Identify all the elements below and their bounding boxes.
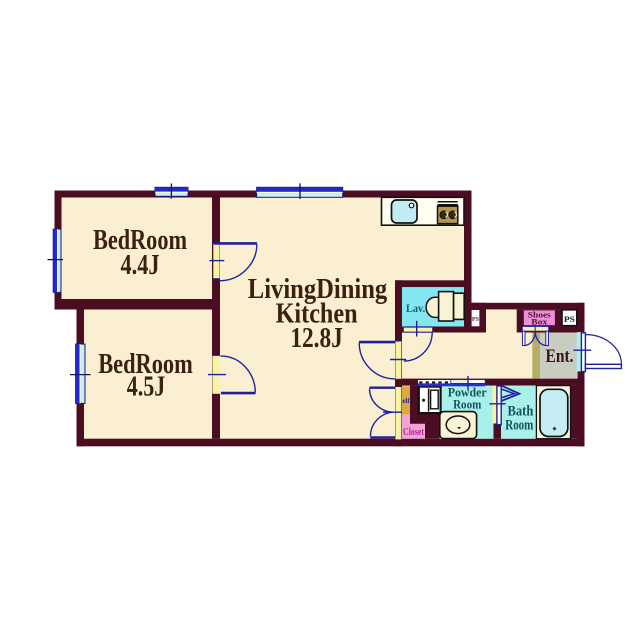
svg-text:Room: Room xyxy=(453,397,482,411)
svg-text:Lav.: Lav. xyxy=(406,301,425,315)
svg-text:4.4J: 4.4J xyxy=(121,250,160,281)
svg-text:Closet: Closet xyxy=(403,426,424,438)
svg-text:Room: Room xyxy=(505,417,533,433)
svg-text:Box: Box xyxy=(531,318,547,327)
svg-text:PS: PS xyxy=(472,316,480,323)
svg-text:4.5J: 4.5J xyxy=(127,371,166,402)
svg-text:PS: PS xyxy=(564,315,576,324)
svg-text:12.8J: 12.8J xyxy=(290,323,343,354)
svg-text:Ent.: Ent. xyxy=(545,346,573,367)
